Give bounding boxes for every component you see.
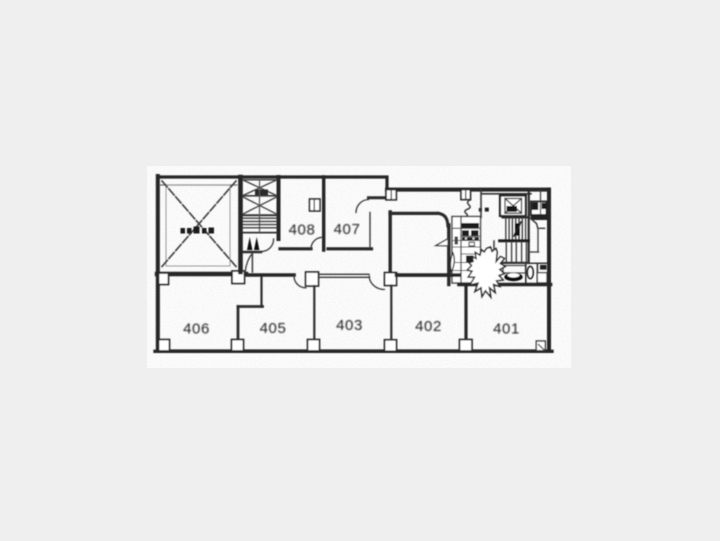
svg-text:406: 406: [183, 320, 210, 337]
svg-text:405: 405: [260, 320, 287, 337]
svg-text:407: 407: [334, 221, 361, 238]
svg-text:403: 403: [336, 317, 363, 334]
svg-text:402: 402: [415, 318, 442, 335]
svg-text:401: 401: [493, 320, 520, 337]
svg-text:408: 408: [289, 222, 316, 239]
